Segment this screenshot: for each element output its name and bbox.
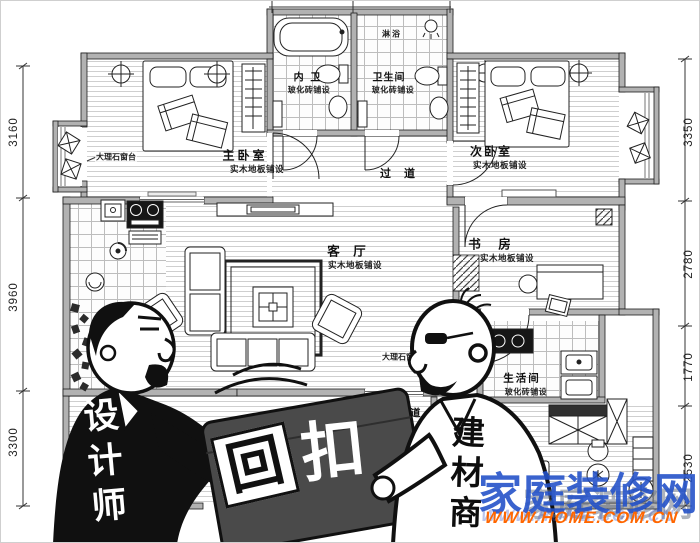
hand — [372, 477, 394, 499]
floorplan-cartoon-image: 主卧室 实木地板铺设 内 卫 玻化砖铺设 卫生间 玻化砖铺设 淋浴 次卧室 实木… — [0, 0, 700, 543]
ear — [470, 345, 486, 361]
watermark-url: WWW.HOME.COM.CN — [484, 510, 679, 527]
ear — [101, 346, 115, 360]
kickback-char-2: 扣 — [298, 416, 368, 486]
glasses — [425, 333, 447, 344]
